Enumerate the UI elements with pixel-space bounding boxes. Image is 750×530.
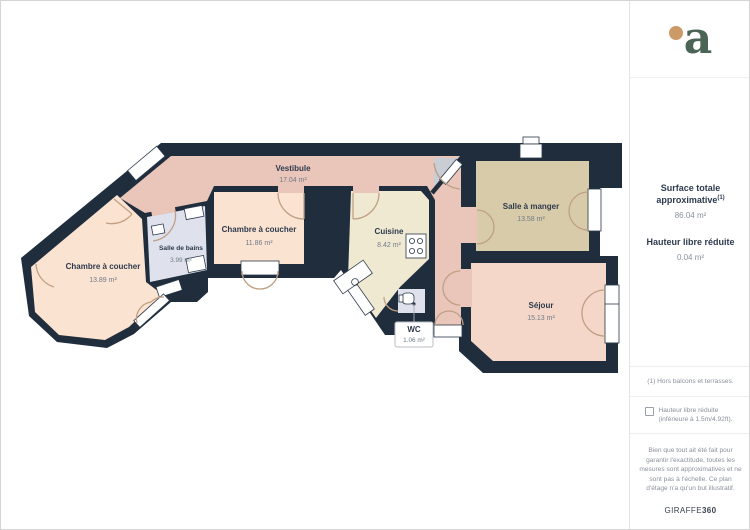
room-label-living: Séjour — [529, 301, 554, 310]
reduced-height-checkbox[interactable] — [645, 407, 654, 416]
reduced-height-checkbox-label: Hauteur libre réduite (inférieure à 1.5m… — [659, 406, 737, 424]
room-label-wc: WC — [407, 325, 421, 334]
door-dining-right — [588, 189, 601, 231]
window-dining-top-vent — [523, 137, 539, 144]
french-door-living-right — [605, 285, 619, 343]
room-label-dining: Salle à manger — [503, 202, 559, 211]
bedroom2-door-opening — [278, 184, 304, 193]
brand-wordmark: GIRAFFE360 — [639, 506, 742, 515]
disclaimer-section: Bien que tout ait été fait pour garantir… — [630, 433, 750, 529]
disclaimer-text: Bien que tout ait été fait pour garantir… — [639, 446, 742, 494]
room-area-wc: 1.06 m² — [403, 337, 425, 344]
room-area-dining: 13.58 m² — [517, 216, 545, 223]
floorplan-page: Vestibule 17.04 m² Chambre à coucher 11.… — [0, 0, 750, 530]
floorplan-svg: Vestibule 17.04 m² Chambre à coucher 11.… — [1, 129, 629, 393]
room-living — [471, 263, 606, 361]
logo-letter: a — [684, 17, 713, 61]
reduced-height-label: Hauteur libre réduite — [646, 236, 734, 248]
logo-section: a — [630, 1, 750, 78]
surface-footnote-marker: (1) — [717, 195, 724, 201]
brand-suffix: 360 — [702, 506, 717, 515]
room-label-kitchen: Cuisine — [375, 227, 404, 236]
surface-total-label: Surface totale approximative(1) — [640, 182, 741, 206]
reduced-height-value: 0.04 m² — [677, 253, 704, 262]
dining-left-door-opening — [460, 207, 477, 243]
logo-dot-icon — [669, 26, 683, 40]
toilet-tank-icon — [399, 295, 403, 302]
stats-section: Surface totale approximative(1) 86.04 m²… — [630, 78, 750, 366]
footnote-section: (1) Hors balcons et terrasses. — [630, 366, 750, 396]
room-area-bedroom-2: 11.86 m² — [245, 240, 273, 247]
room-label-bedroom-1: Chambre à coucher — [66, 262, 141, 271]
toilet-icon — [402, 293, 414, 304]
info-sidebar: a Surface totale approximative(1) 86.04 … — [629, 1, 750, 529]
room-area-vestibule: 17.04 m² — [279, 177, 307, 184]
stove-icon — [406, 234, 426, 258]
surface-total-value: 86.04 m² — [675, 211, 707, 220]
room-area-bathroom: 3.99 m² — [170, 257, 192, 264]
room-area-living: 15.13 m² — [527, 315, 555, 322]
room-area-kitchen: 8.42 m² — [377, 242, 401, 249]
living-left-door-opening — [460, 269, 472, 307]
bathroom-fixture-icon — [151, 224, 164, 235]
room-area-bedroom-1: 13.89 m² — [89, 277, 117, 284]
brand-name: GIRAFFE — [664, 506, 701, 515]
legend-section: Hauteur libre réduite (inférieure à 1.5m… — [630, 396, 750, 433]
room-label-bedroom-2: Chambre à coucher — [222, 225, 297, 234]
footnote-text: (1) Hors balcons et terrasses. — [647, 378, 733, 385]
french-door-bedroom2 — [241, 261, 279, 275]
window-dining-top — [520, 144, 542, 158]
door-corridor-bottom — [434, 325, 462, 337]
room-label-bathroom: Salle de bains — [159, 245, 203, 252]
kitchen-door-opening — [353, 184, 379, 193]
room-label-vestibule: Vestibule — [275, 164, 311, 173]
surface-total-text: Surface totale approximative — [656, 183, 720, 205]
brand-logo: a — [669, 17, 713, 61]
